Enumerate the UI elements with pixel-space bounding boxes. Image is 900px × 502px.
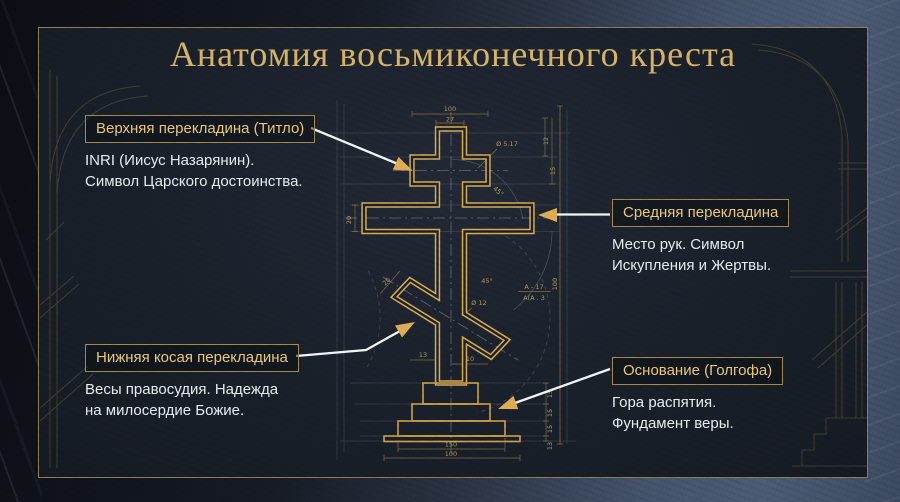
dim-label: 13 bbox=[546, 442, 554, 450]
callout-label-box: Средняя перекладина bbox=[612, 199, 789, 227]
callout-description: INRI (Иисус Назарянин). Символ Царского … bbox=[85, 150, 315, 192]
callout-top-bar: Верхняя перекладина (Титло) INRI (Иисус … bbox=[85, 115, 315, 192]
callout-label: Основание (Голгофа) bbox=[623, 362, 772, 379]
connector-top bbox=[311, 128, 398, 164]
infographic-canvas: Анатомия восьмиконечного креста bbox=[0, 0, 900, 502]
callout-description: Весы правосудия. Надежда на милосердие Б… bbox=[85, 379, 299, 421]
dim-label: 15 bbox=[546, 425, 554, 433]
dim-label: 15 bbox=[546, 409, 554, 417]
dim-label: 45° bbox=[481, 277, 493, 285]
dim-label: 100 bbox=[444, 105, 456, 113]
callout-middle-bar: Средняя перекладина Место рук. Символ Ис… bbox=[612, 199, 789, 276]
callout-label: Верхняя перекладина (Титло) bbox=[96, 120, 304, 137]
callout-label-box: Основание (Голгофа) bbox=[612, 357, 783, 385]
dim-label: 20 bbox=[381, 276, 393, 288]
description-line: Весы правосудия. Надежда bbox=[85, 379, 299, 400]
description-line: Фундамент веры. bbox=[612, 413, 783, 434]
base-step-1 bbox=[423, 383, 478, 404]
callout-label-box: Нижняя косая перекладина bbox=[85, 344, 299, 372]
callout-lines bbox=[296, 128, 610, 403]
arrowhead-icon bbox=[496, 396, 519, 416]
cross-outline bbox=[364, 129, 532, 383]
dim-label: 100 bbox=[551, 278, 559, 290]
callout-base: Основание (Голгофа) Гора распятия. Фунда… bbox=[612, 357, 783, 434]
callout-label: Нижняя косая перекладина bbox=[96, 349, 288, 366]
cross-silhouette-core bbox=[364, 129, 532, 383]
dim-label: 27 bbox=[446, 116, 454, 124]
description-line: на милосердие Божие. bbox=[85, 400, 299, 421]
dim-label: А - 17 bbox=[524, 283, 543, 291]
dim-label: 15 bbox=[549, 167, 557, 175]
connector-base bbox=[515, 369, 610, 403]
base-step-3 bbox=[398, 421, 505, 436]
dim-label: 45° bbox=[491, 185, 505, 199]
arrowhead-icon bbox=[395, 316, 418, 338]
base-steps bbox=[384, 383, 520, 442]
description-line: Символ Царского достоинства. bbox=[85, 171, 315, 192]
description-line: Гора распятия. bbox=[612, 392, 783, 413]
dim-label: 13 bbox=[419, 351, 427, 359]
callout-description: Место рук. Символ Искупления и Жертвы. bbox=[612, 234, 789, 276]
description-line: Искупления и Жертвы. bbox=[612, 255, 789, 276]
connector-slant bbox=[296, 331, 400, 356]
dim-label: 100 bbox=[445, 450, 457, 458]
cross-silhouette bbox=[364, 129, 532, 383]
callout-slant-bar: Нижняя косая перекладина Весы правосудия… bbox=[85, 344, 299, 421]
callout-label-box: Верхняя перекладина (Титло) bbox=[85, 115, 315, 143]
description-line: Место рук. Символ bbox=[612, 234, 789, 255]
dim-label: 12 bbox=[542, 137, 550, 145]
callout-description: Гора распятия. Фундамент веры. bbox=[612, 392, 783, 434]
description-line: INRI (Иисус Назарянин). bbox=[85, 150, 315, 171]
arrowhead-icon bbox=[538, 208, 557, 222]
callout-label: Средняя перекладина bbox=[623, 204, 778, 221]
dim-label: А(А . 3 bbox=[523, 294, 545, 302]
dim-label: Ø 12 bbox=[471, 299, 486, 307]
dim-label: 20 bbox=[345, 216, 353, 224]
dim-label: Ø 5.17 bbox=[496, 140, 518, 148]
